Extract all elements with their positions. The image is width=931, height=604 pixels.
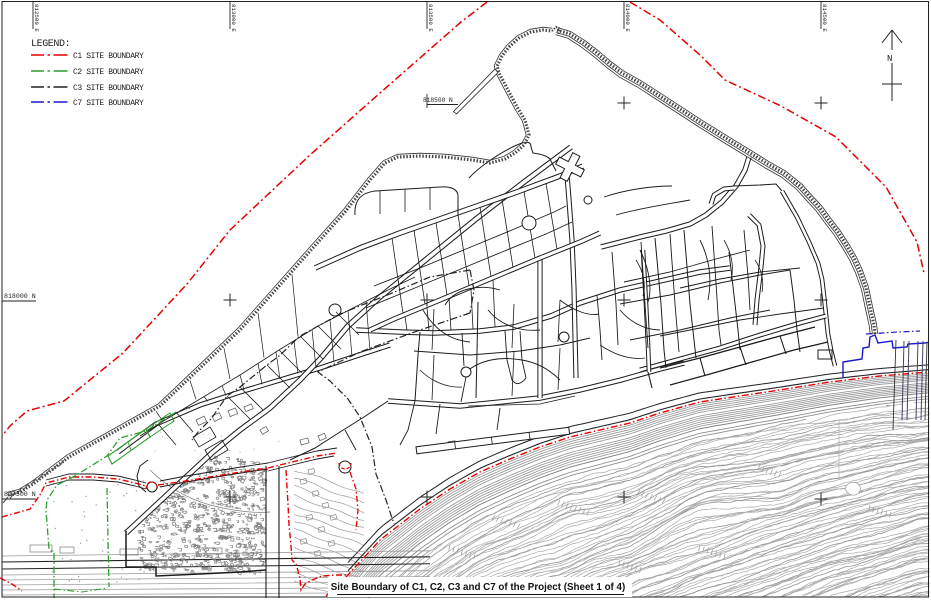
svg-text:814000 E: 814000 E <box>624 4 631 32</box>
svg-text:C7 SITE BOUNDARY: C7 SITE BOUNDARY <box>73 99 144 108</box>
svg-text:C1 SITE BOUNDARY: C1 SITE BOUNDARY <box>73 52 144 61</box>
svg-text:813000 E: 813000 E <box>230 4 237 32</box>
svg-text:812500 E: 812500 E <box>33 4 40 32</box>
svg-text:817500 N: 817500 N <box>4 491 36 498</box>
svg-text:813500 E: 813500 E <box>427 4 434 32</box>
svg-text:814500 E: 814500 E <box>821 4 828 32</box>
svg-text:C2 SITE BOUNDARY: C2 SITE BOUNDARY <box>73 68 144 77</box>
svg-text:LEGEND:: LEGEND: <box>31 39 70 50</box>
svg-text:C3 SITE BOUNDARY: C3 SITE BOUNDARY <box>73 84 144 93</box>
svg-text:N: N <box>887 54 892 64</box>
svg-text:818500 N: 818500 N <box>423 97 453 104</box>
svg-text:818000 N: 818000 N <box>4 293 36 300</box>
svg-text:Site Boundary of C1, C2, C3 an: Site Boundary of C1, C2, C3 and C7 of th… <box>331 582 626 593</box>
